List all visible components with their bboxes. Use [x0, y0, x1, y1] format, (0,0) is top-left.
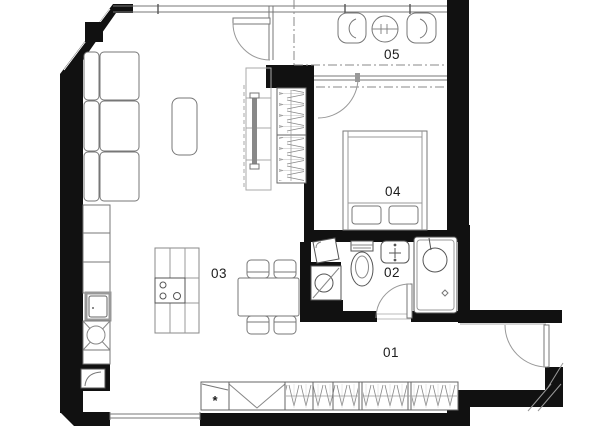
sofa-back-cushion — [84, 152, 99, 201]
counter-cabinet — [83, 262, 110, 293]
wall-bath-bottom-left — [300, 300, 343, 322]
balcony-chair — [407, 13, 436, 43]
bed — [343, 131, 427, 230]
room-label-05: 05 — [384, 47, 400, 62]
island-hob — [155, 278, 185, 303]
wall-pillar — [85, 22, 103, 42]
window-bottom — [110, 412, 200, 420]
floor-plan: 01 02 03 04 05 * — [0, 0, 600, 426]
floor-plan-drawing: 01 02 03 04 05 * — [0, 0, 600, 426]
kitchen-island — [155, 248, 199, 333]
wardrobe-bottom — [201, 382, 458, 410]
counter-appliance-circle — [87, 326, 105, 344]
counter-cabinet — [83, 350, 110, 364]
wall-bottom-left — [60, 390, 110, 426]
sliding-door-cap — [250, 164, 259, 169]
hob-burner — [160, 282, 166, 288]
sofa-back-cushion — [84, 101, 99, 151]
room-label-01: 01 — [383, 345, 399, 360]
wardrobe-side-hatch — [279, 137, 304, 181]
balcony-set — [338, 13, 436, 43]
bath-threshold — [377, 314, 411, 319]
bath-sink-dot — [394, 244, 396, 246]
kitchen-niche — [81, 369, 105, 388]
shower-basin — [423, 248, 447, 272]
wall-pier-balcony — [266, 65, 314, 88]
kitchen-sink-basin — [89, 296, 107, 317]
bedroom-balcony-door-swing — [318, 78, 358, 118]
wardrobe-side — [277, 88, 306, 183]
sliding-door-cap — [250, 93, 259, 98]
bath-shelf — [313, 238, 339, 263]
sliding-door — [250, 93, 259, 169]
sliding-door-panel — [252, 97, 257, 166]
hob-burner — [174, 293, 181, 300]
balcony-chair — [338, 13, 366, 43]
coffee-table — [172, 98, 197, 155]
living-balcony-door-leaf — [233, 18, 270, 24]
sofa-seat-cushion — [100, 152, 139, 201]
entry-door-swing — [505, 325, 547, 367]
counter-cabinet — [83, 233, 110, 262]
bedroom-glass — [314, 76, 447, 80]
windows — [110, 4, 546, 420]
wardrobe-side-hatch — [279, 90, 304, 133]
sofa-seat-cushion — [100, 101, 139, 151]
counter-cabinet — [83, 205, 110, 233]
room-label-04: 04 — [385, 184, 401, 199]
bathroom-door-swing — [376, 284, 410, 318]
bathroom-door-leaf — [407, 284, 412, 318]
dining-table — [238, 278, 299, 316]
hall-cabinet-shelves — [246, 98, 271, 160]
living-balcony-door-swing — [233, 23, 270, 60]
kitchen-counter — [83, 205, 110, 364]
dining-chair — [274, 316, 296, 334]
balcony-door-jamb — [269, 6, 273, 60]
entry-door-leaf — [544, 325, 549, 367]
toilet-bowl-inner — [356, 256, 369, 278]
sofa-seat-cushion — [100, 52, 139, 100]
bed-pillow — [389, 206, 418, 224]
room-label-02: 02 — [384, 265, 400, 280]
wall-right-upper — [447, 0, 469, 232]
sofa-back-cushion — [84, 52, 99, 100]
toilet-cistern — [351, 241, 373, 251]
wall-bath-bottom-mid — [343, 311, 377, 322]
kitchen-sink-dot — [92, 307, 94, 309]
dining-set — [238, 260, 299, 334]
washing-machine-drum — [315, 274, 333, 292]
dining-chair — [247, 260, 269, 278]
bed-pillow — [352, 206, 381, 224]
wall-bottom-right-band — [447, 390, 563, 407]
room-label-03: 03 — [211, 266, 227, 281]
bath-sink-dot — [394, 259, 396, 261]
sofa — [84, 52, 139, 201]
wall-entry-top — [458, 310, 562, 323]
dining-chair — [274, 260, 296, 278]
dining-chair — [247, 316, 269, 334]
hob-burner — [160, 293, 166, 299]
wall-bottom-band — [200, 413, 470, 426]
